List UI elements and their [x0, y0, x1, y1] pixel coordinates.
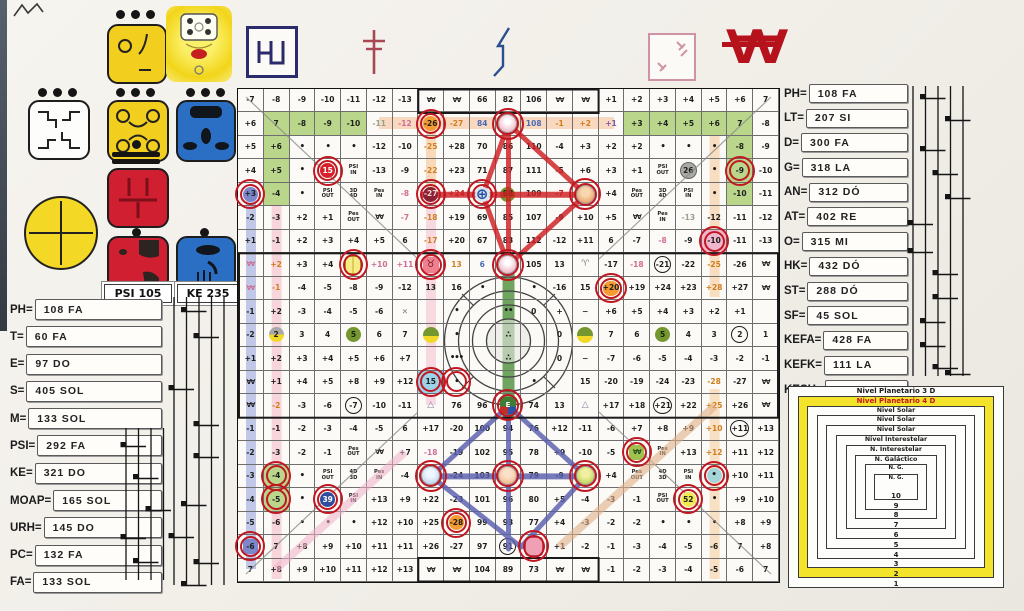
grid-cell-r19c7: +10	[393, 512, 419, 535]
cell-value: -3	[294, 304, 309, 319]
grid-cell-r5c11: 88	[496, 183, 522, 206]
grid-cell-r20c15: -1	[599, 535, 625, 558]
grid-cell-r10c13: +	[547, 300, 573, 323]
cell-value: 0	[552, 327, 567, 342]
grid-cell-r21c6: +12	[367, 559, 393, 582]
cell-value: -18	[629, 257, 644, 272]
red-circled-value	[421, 466, 440, 485]
blue-seal-2-icon	[176, 236, 236, 290]
cell-value: -7	[604, 351, 619, 366]
value-row-ph: PH=108 FA	[784, 84, 908, 103]
grid-cell-r18c4: 39	[315, 488, 341, 511]
grid-cell-r4c15: +3	[599, 159, 625, 182]
grid-cell-r20c2: 7	[264, 535, 290, 558]
cell-value: -2	[294, 421, 309, 436]
grid-cell-r5c14	[573, 183, 599, 206]
grid-cell-r5c15: +4	[599, 183, 625, 206]
value-text: 45 SOL	[816, 310, 858, 322]
cell-value: -8	[346, 281, 361, 296]
value-label: G=	[784, 162, 800, 174]
level-number: 3	[808, 560, 984, 568]
cell-value: ∀∀	[243, 374, 258, 389]
cell-value: -11	[758, 187, 773, 202]
grid-cell-r8c19: -25	[702, 253, 728, 276]
grid-cell-r7c2: -1	[264, 230, 290, 253]
grid-cell-r15c21: +13	[753, 418, 779, 441]
grid-cell-r11c21: 1	[753, 324, 779, 347]
cell-value: -12	[707, 210, 722, 225]
cell-value: -9	[372, 281, 387, 296]
cell-value: +28	[706, 281, 723, 296]
grid-cell-r11c14	[573, 324, 599, 347]
grid-cell-r16c20: +11	[727, 441, 753, 464]
cell-value: 112	[526, 234, 542, 249]
grid-cell-r15c3: -2	[290, 418, 316, 441]
grid-cell-r18c19: •	[702, 488, 728, 511]
cell-value: 5	[346, 327, 361, 342]
value-box: 207 SI	[806, 109, 908, 128]
cell-value: PSI OUT	[319, 187, 336, 202]
grid-cell-r14c15: +17	[599, 394, 625, 417]
cell-value: 0	[526, 304, 541, 319]
red-circled-value	[498, 114, 517, 133]
grid-cell-r21c2: +8	[264, 559, 290, 582]
grid-cell-r2c21: -8	[753, 112, 779, 135]
cell-value: 78	[526, 445, 541, 460]
grid-cell-r2c8: -26	[418, 112, 444, 135]
cell-value: Pes OUT	[345, 445, 362, 460]
grid-cell-r16c5: Pes OUT	[341, 441, 367, 464]
red-circled-value: -10	[707, 234, 722, 249]
grid-cell-r14c8: △	[418, 394, 444, 417]
grid-cell-r7c12: 112	[521, 230, 547, 253]
grid-cell-r2c16: +3	[624, 112, 650, 135]
cell-value: +2	[578, 116, 593, 131]
cell-value: +19	[448, 210, 465, 225]
grid-cell-r18c15: -3	[599, 488, 625, 511]
cell-value: +6	[578, 163, 593, 178]
value-box: 60 FA	[26, 326, 162, 347]
cell-value: 16	[449, 281, 464, 296]
cell-value: +2	[629, 93, 644, 108]
cell-value: +11	[731, 445, 748, 460]
value-text: 288 DÓ	[816, 285, 858, 297]
cell-value: +7	[397, 445, 412, 460]
grid-cell-r8c8: ♉	[418, 253, 444, 276]
grid-cell-r18c6: +13	[367, 488, 393, 511]
grid-cell-r3c9: +28	[444, 136, 470, 159]
grid-cell-r4c5: PSI IN	[341, 159, 367, 182]
grid-cell-r17c21: +11	[753, 465, 779, 488]
grid-cell-r16c16: ∀∀	[624, 441, 650, 464]
grid-cell-r15c17: +8	[650, 418, 676, 441]
cell-value: -22	[423, 163, 438, 178]
grid-cell-r10c3: -3	[290, 300, 316, 323]
cell-value: -1	[758, 351, 773, 366]
cell-value: +2	[294, 234, 309, 249]
value-label: E=	[10, 358, 24, 370]
cell-value: -12	[758, 210, 773, 225]
grid-cell-r20c18: -5	[676, 535, 702, 558]
grid-cell-r21c14: ∀∀	[573, 559, 599, 582]
cell-value: +5	[629, 304, 644, 319]
cell-value: +10	[397, 515, 414, 530]
grid-cell-r3c17: •	[650, 136, 676, 159]
grid-cell-r5c4: PSI OUT	[315, 183, 341, 206]
grid-cell-r20c4: +9	[315, 535, 341, 558]
grid-cell-r10c6: -6	[367, 300, 393, 323]
cell-value: 83	[500, 234, 515, 249]
grid-cell-r8c13: 13	[547, 253, 573, 276]
cell-value: +3	[294, 257, 309, 272]
grid-cell-r1c16: +2	[624, 89, 650, 112]
grid-cell-r1c17: +3	[650, 89, 676, 112]
cell-value: -2	[732, 351, 747, 366]
grid-cell-r14c4: -6	[315, 394, 341, 417]
cell-value: -4	[681, 351, 696, 366]
grid-cell-r14c11: E	[496, 394, 522, 417]
cell-value: •	[294, 515, 309, 530]
grid-cell-r12c4: +4	[315, 347, 341, 370]
cell-value: -7	[629, 234, 644, 249]
grid-cell-r16c6: ∀∀	[367, 441, 393, 464]
value-label: HK=	[784, 260, 807, 272]
grid-cell-r7c1: +1	[238, 230, 264, 253]
grid-cell-r18c12: 80	[521, 488, 547, 511]
grid-cell-r1c6: -12	[367, 89, 393, 112]
cell-value: 6	[604, 234, 619, 249]
grid-cell-r2c19: +6	[702, 112, 728, 135]
cell-value	[758, 304, 773, 319]
cell-value: ∀∀	[243, 398, 258, 413]
cell-value: -3	[578, 515, 593, 530]
grid-cell-r9c6: -9	[367, 277, 393, 300]
cell-value: -12	[552, 234, 567, 249]
cell-value: ∀∀	[243, 257, 258, 272]
cell-value: -12	[397, 116, 412, 131]
grid-cell-r16c1: -2	[238, 441, 264, 464]
red-circled-value: +20	[603, 281, 620, 296]
cell-value: •	[294, 468, 309, 483]
cell-value: +24	[448, 187, 465, 202]
cell-value: 26	[680, 162, 697, 179]
grid-cell-r4c9: +23	[444, 159, 470, 182]
grid-cell-r3c1: +5	[238, 136, 264, 159]
grid-cell-r3c2: +6	[264, 136, 290, 159]
value-row-d: D=300 FA	[784, 133, 908, 152]
cell-value: 6	[629, 327, 644, 342]
grid-cell-r13c2: +1	[264, 371, 290, 394]
grid-cell-r18c10: 101	[470, 488, 496, 511]
cell-value: •	[681, 140, 696, 155]
level-label: Nivel Interestelar	[837, 436, 955, 443]
grid-cell-r6c1: -2	[238, 206, 264, 229]
cell-value: 7	[604, 327, 619, 342]
grid-cell-r21c21: 7	[753, 559, 779, 582]
grid-cell-r1c2: -8	[264, 89, 290, 112]
grid-cell-r9c2: -1	[264, 277, 290, 300]
cell-value: •	[320, 140, 335, 155]
cell-value: ∀∀	[552, 93, 567, 108]
grid-cell-r11c20: 2	[727, 324, 753, 347]
cell-value: -9	[552, 468, 567, 483]
cell-value: +10	[319, 562, 336, 577]
cell-value	[552, 374, 567, 389]
cell-value: +2	[269, 257, 284, 272]
grid-cell-r5c7: -8	[393, 183, 419, 206]
cell-value: -3	[243, 468, 258, 483]
grid-cell-r8c17: -21	[650, 253, 676, 276]
grid-cell-r8c4: +4	[315, 253, 341, 276]
grid-cell-r13c21: ∀∀	[753, 371, 779, 394]
grid-cell-r1c5: -11	[341, 89, 367, 112]
three-dots-icon	[116, 10, 155, 19]
double-forall-icon: ∀∀	[726, 24, 779, 70]
cell-value: -21	[654, 256, 671, 273]
grid-cell-r10c15: +6	[599, 300, 625, 323]
cell-value: 7	[269, 116, 284, 131]
cell-value: +4	[294, 374, 309, 389]
grid-cell-r12c1: +1	[238, 347, 264, 370]
grid-cell-r5c20: -10	[727, 183, 753, 206]
cell-value	[423, 351, 438, 366]
grid-cell-r1c12: 106	[521, 89, 547, 112]
grid-cell-r17c11	[496, 465, 522, 488]
value-label: O=	[784, 236, 800, 248]
red-circled-value	[498, 466, 517, 485]
red-circled-value: 15	[320, 163, 335, 178]
cell-value: +9	[397, 492, 412, 507]
level-label: Nivel Solar	[808, 407, 984, 414]
grid-cell-r5c6: Pes IN	[367, 183, 393, 206]
grid-cell-r17c8	[418, 465, 444, 488]
value-row-at: AT=402 RE	[784, 207, 908, 226]
grid-cell-r4c16: +1	[624, 159, 650, 182]
grid-cell-r21c4: +10	[315, 559, 341, 582]
grid-cell-r2c14: +2	[573, 112, 599, 135]
grid-cell-r2c2: 7	[264, 112, 290, 135]
grid-cell-r2c3: -8	[290, 112, 316, 135]
grid-cell-r11c3: 3	[290, 324, 316, 347]
cell-value: +4	[655, 304, 670, 319]
cell-value: 13	[449, 257, 464, 272]
cell-value: -18	[423, 445, 438, 460]
grid-cell-r9c21: ∀∀	[753, 277, 779, 300]
cell-value: Pes IN	[371, 187, 388, 202]
grid-cell-r11c6: 6	[367, 324, 393, 347]
grid-cell-r14c20: +26	[727, 394, 753, 417]
cell-value: -1	[269, 234, 284, 249]
grid-cell-r12c14: −	[573, 347, 599, 370]
grid-cell-r21c16: -2	[624, 559, 650, 582]
cell-value: 4D 3D	[345, 468, 362, 483]
cell-value: -9	[758, 140, 773, 155]
cell-value: 15	[578, 374, 593, 389]
grid-cell-r19c14: -3	[573, 512, 599, 535]
red-circled-value	[498, 255, 517, 274]
cell-value: -25	[423, 140, 438, 155]
value-row-st: ST=288 DÓ	[784, 282, 908, 301]
value-label: PH=	[784, 88, 807, 100]
value-label: AT=	[784, 211, 805, 223]
grid-cell-r2c4: -9	[315, 112, 341, 135]
grid-cell-r21c1: 7	[238, 559, 264, 582]
level-label: N. Galáctico	[856, 456, 936, 463]
grid-cell-r14c13: 13	[547, 394, 573, 417]
cell-value: -1	[269, 281, 284, 296]
cell-value: -5	[707, 562, 722, 577]
cell-value	[475, 304, 490, 319]
cell-value: 3D 4D	[345, 187, 362, 202]
cell-value: -24	[449, 468, 464, 483]
cell-value: 15	[578, 281, 593, 296]
cell-value: -10	[758, 163, 773, 178]
grid-cell-r16c7: +7	[393, 441, 419, 464]
cell-value: +5	[346, 351, 361, 366]
grid-cell-r17c1: -3	[238, 465, 264, 488]
cell-value: +11	[730, 420, 749, 437]
cell-value: -6	[629, 351, 644, 366]
grid-cell-r7c16: -7	[624, 230, 650, 253]
cell-value: 4	[681, 327, 696, 342]
value-label: URH=	[10, 522, 42, 534]
cell-value: +3	[681, 304, 696, 319]
grid-cell-r18c17: PSI OUT	[650, 488, 676, 511]
grid-cell-r21c5: +11	[341, 559, 367, 582]
grid-cell-r15c4: -3	[315, 418, 341, 441]
value-box: 428 FA	[823, 331, 908, 350]
cell-value: +20	[448, 234, 465, 249]
cell-value: -22	[681, 257, 696, 272]
cell-value: -13	[397, 93, 412, 108]
value-text: 97 DO	[35, 358, 70, 370]
cell-value: +1	[243, 351, 258, 366]
cell-value: 7	[397, 327, 412, 342]
grid-cell-r18c1: -4	[238, 488, 264, 511]
cell-value: ♈	[578, 257, 593, 272]
grid-cell-r13c13	[547, 371, 573, 394]
three-dots-icon	[186, 88, 225, 97]
grid-cell-r1c9: ∀∀	[444, 89, 470, 112]
level-label: Nivel Solar	[818, 416, 974, 423]
grid-cell-r2c1: +6	[238, 112, 264, 135]
blue-seal-1-icon	[176, 100, 236, 162]
cell-value: +8	[269, 562, 284, 577]
value-box: 133 SOL	[28, 408, 162, 429]
value-box: 108 FA	[809, 84, 908, 103]
grid-cell-r13c14: 15	[573, 371, 599, 394]
grid-cell-r17c12: 79	[521, 465, 547, 488]
cell-value: -12	[372, 93, 387, 108]
cell-value: +3	[320, 234, 335, 249]
cell-value: +5	[243, 140, 258, 155]
cell-value: +8	[655, 421, 670, 436]
cell-value: +10	[371, 257, 388, 272]
cell-value: Pes IN	[371, 468, 388, 483]
cell-value: +8	[758, 539, 773, 554]
cell-value: +4	[604, 468, 619, 483]
grid-cell-r18c7: +9	[393, 488, 419, 511]
grid-cell-r11c1: -2	[238, 324, 264, 347]
grid-cell-r20c10: 97	[470, 535, 496, 558]
grid-cell-r16c15: -5	[599, 441, 625, 464]
grid-cell-r12c6: +6	[367, 347, 393, 370]
cell-value: +9	[758, 515, 773, 530]
cell-value: +1	[732, 304, 747, 319]
grid-cell-r18c20: +9	[727, 488, 753, 511]
grid-cell-r3c7: -10	[393, 136, 419, 159]
grid-cell-r12c5: +5	[341, 347, 367, 370]
cell-value: •	[707, 163, 722, 178]
grid-cell-r8c21: ∀∀	[753, 253, 779, 276]
cell-value: +13	[757, 421, 774, 436]
cell-value: -1	[552, 116, 567, 131]
grid-cell-r11c15: 7	[599, 324, 625, 347]
grid-cell-r17c14	[573, 465, 599, 488]
grid-cell-r17c9: -24	[444, 465, 470, 488]
cell-value: -6	[269, 515, 284, 530]
telektonon-chart-page: PSI 105 KE 235 ∀∀ PH=108 FAT=60 FAE=97 D…	[0, 0, 1024, 611]
cell-value: -10	[346, 116, 361, 131]
grid-cell-r19c16: -2	[624, 512, 650, 535]
cell-value: -27	[449, 539, 464, 554]
cell-value: -5	[552, 163, 567, 178]
cell-value: +2	[269, 351, 284, 366]
level-number: 9	[866, 502, 926, 510]
grid-cell-r1c3: -9	[290, 89, 316, 112]
cell-value: +24	[654, 281, 671, 296]
value-row-an: AN=312 DÓ	[784, 183, 908, 202]
value-text: 318 LA	[811, 162, 851, 174]
value-label: PH=	[10, 304, 33, 316]
cell-value: 86	[500, 140, 515, 155]
grid-cell-r2c20: 7	[727, 112, 753, 135]
grid-cell-r14c19: +25	[702, 394, 728, 417]
cell-value: +8	[294, 539, 309, 554]
cell-value: 3	[707, 327, 722, 342]
cell-value: +9	[732, 492, 747, 507]
grid-cell-r6c8: -18	[418, 206, 444, 229]
level-label: N. G.	[875, 475, 916, 481]
cell-value: 13	[552, 257, 567, 272]
cell-value: -9	[681, 234, 696, 249]
cell-value: Pes OUT	[345, 210, 362, 225]
grid-cell-r6c12: 107	[521, 206, 547, 229]
cell-value: Pes OUT	[628, 468, 645, 483]
cell-value: •	[707, 187, 722, 202]
grid-cell-r13c1: ∀∀	[238, 371, 264, 394]
level-number: 2	[799, 570, 994, 578]
yellow-circle-cross-icon	[24, 196, 98, 270]
grid-cell-r4c7: -9	[393, 159, 419, 182]
grid-cell-r14c6: -10	[367, 394, 393, 417]
cell-value: +6	[707, 116, 722, 131]
grid-cell-r8c11	[496, 253, 522, 276]
cell-value	[475, 351, 490, 366]
cell-value: +4	[681, 93, 696, 108]
grid-cell-r2c7: -12	[393, 112, 419, 135]
cell-value: +9	[681, 421, 696, 436]
value-box: 97 DO	[26, 354, 162, 375]
grid-cell-r5c16: Pes OUT	[624, 183, 650, 206]
cell-value: 96	[475, 398, 490, 413]
cell-value: +	[552, 304, 567, 319]
grid-cell-r13c18: -23	[676, 371, 702, 394]
cell-value: +1	[629, 163, 644, 178]
grid-cell-r20c12	[521, 535, 547, 558]
grid-cell-r9c13: -16	[547, 277, 573, 300]
grid-cell-r7c19: -10	[702, 230, 728, 253]
